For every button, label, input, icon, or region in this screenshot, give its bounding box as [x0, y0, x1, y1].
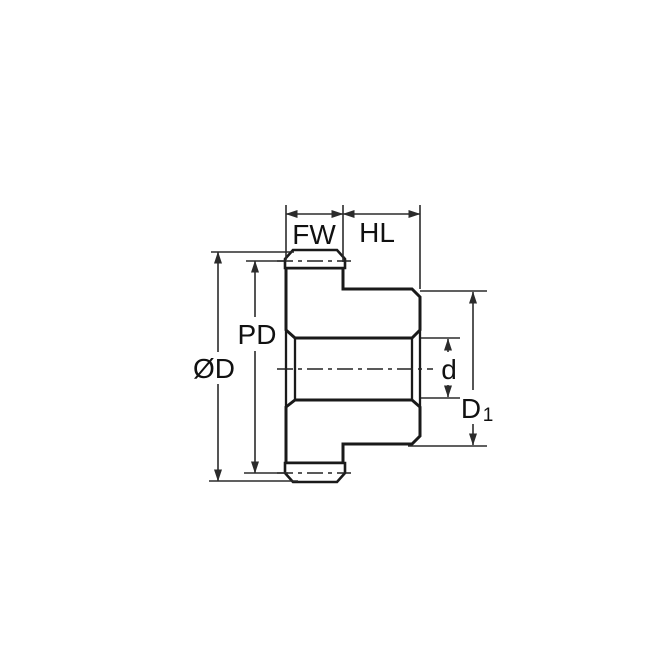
gear-drawing-canvas: FW HL PD ØD d D 1	[0, 0, 670, 670]
gear-lower-body-section	[286, 400, 420, 463]
hl-dimension-label: HL	[359, 217, 395, 248]
fw-dimension-label: FW	[292, 219, 336, 250]
hub-diameter-subscript: 1	[483, 405, 494, 426]
gear-upper-body-section	[286, 268, 420, 338]
outer-diameter-label: ØD	[193, 353, 235, 384]
bore-diameter-label: d	[441, 354, 457, 385]
pd-dimension-label: PD	[238, 319, 277, 350]
hub-diameter-label: D	[461, 393, 481, 424]
gear-technical-drawing: FW HL PD ØD d D 1	[0, 0, 670, 670]
